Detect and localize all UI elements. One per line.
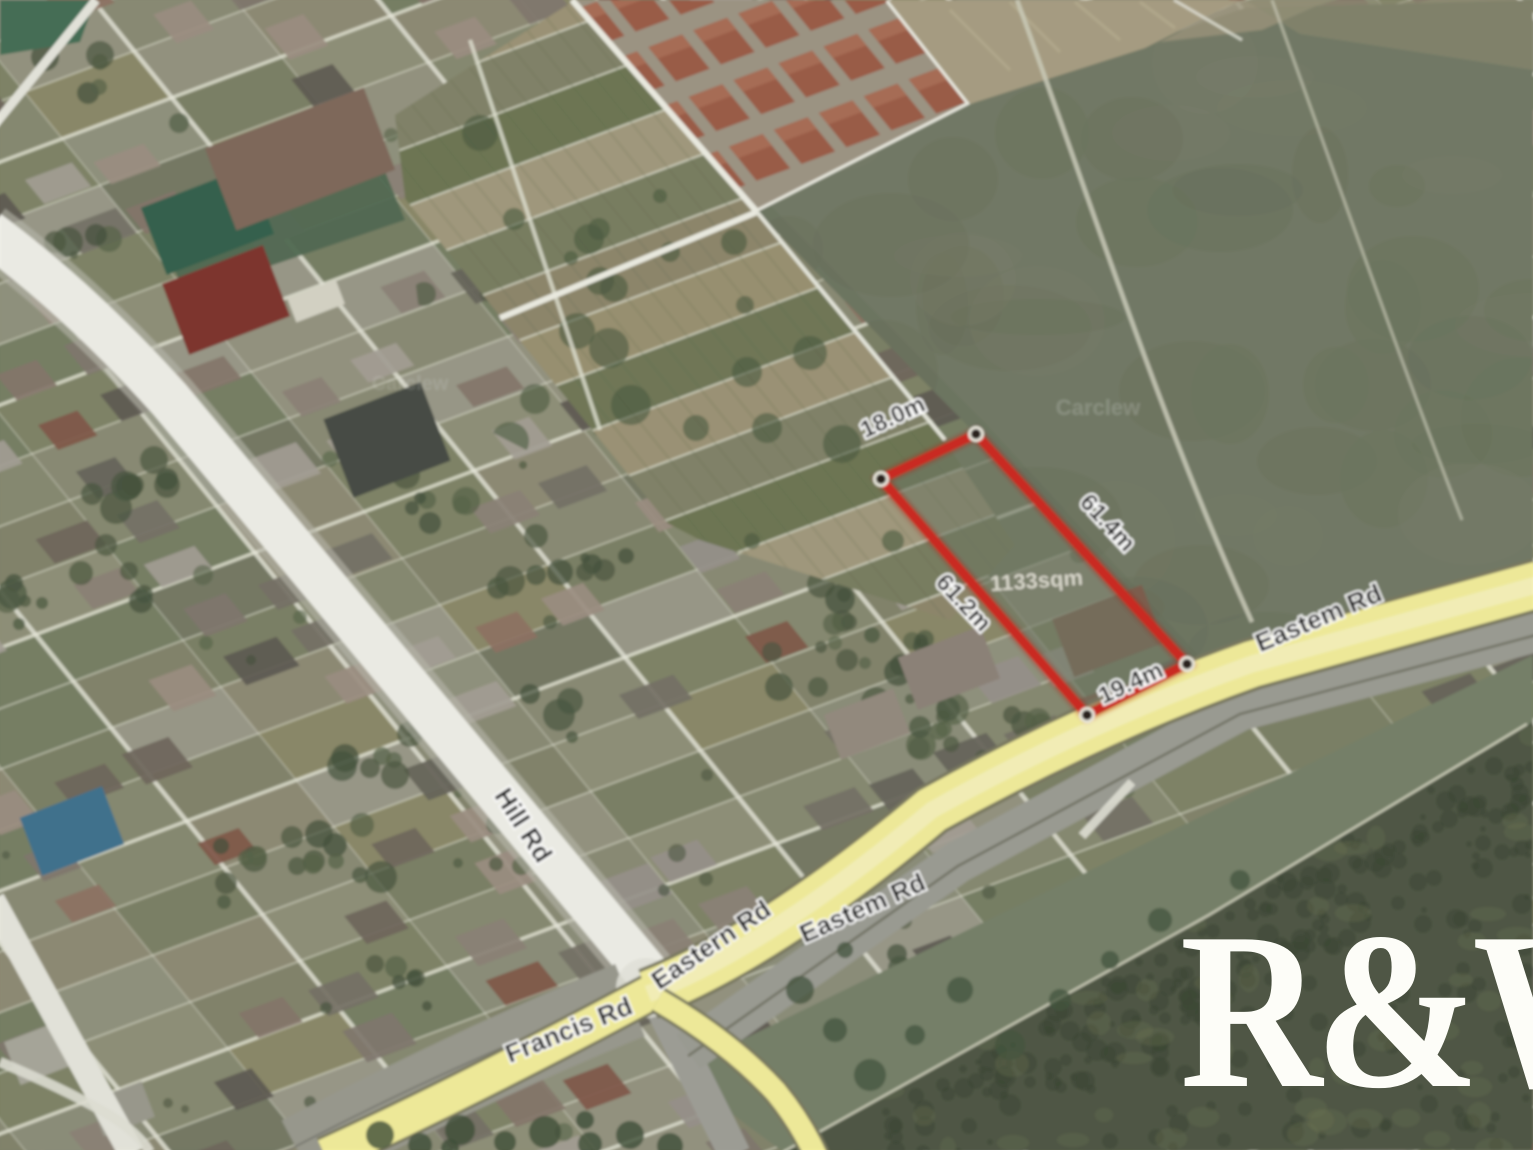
svg-text:Carclew: Carclew [1056, 395, 1141, 420]
svg-text:Carclew: Carclew [372, 373, 449, 395]
svg-text:R&W: R&W [1180, 886, 1533, 1134]
